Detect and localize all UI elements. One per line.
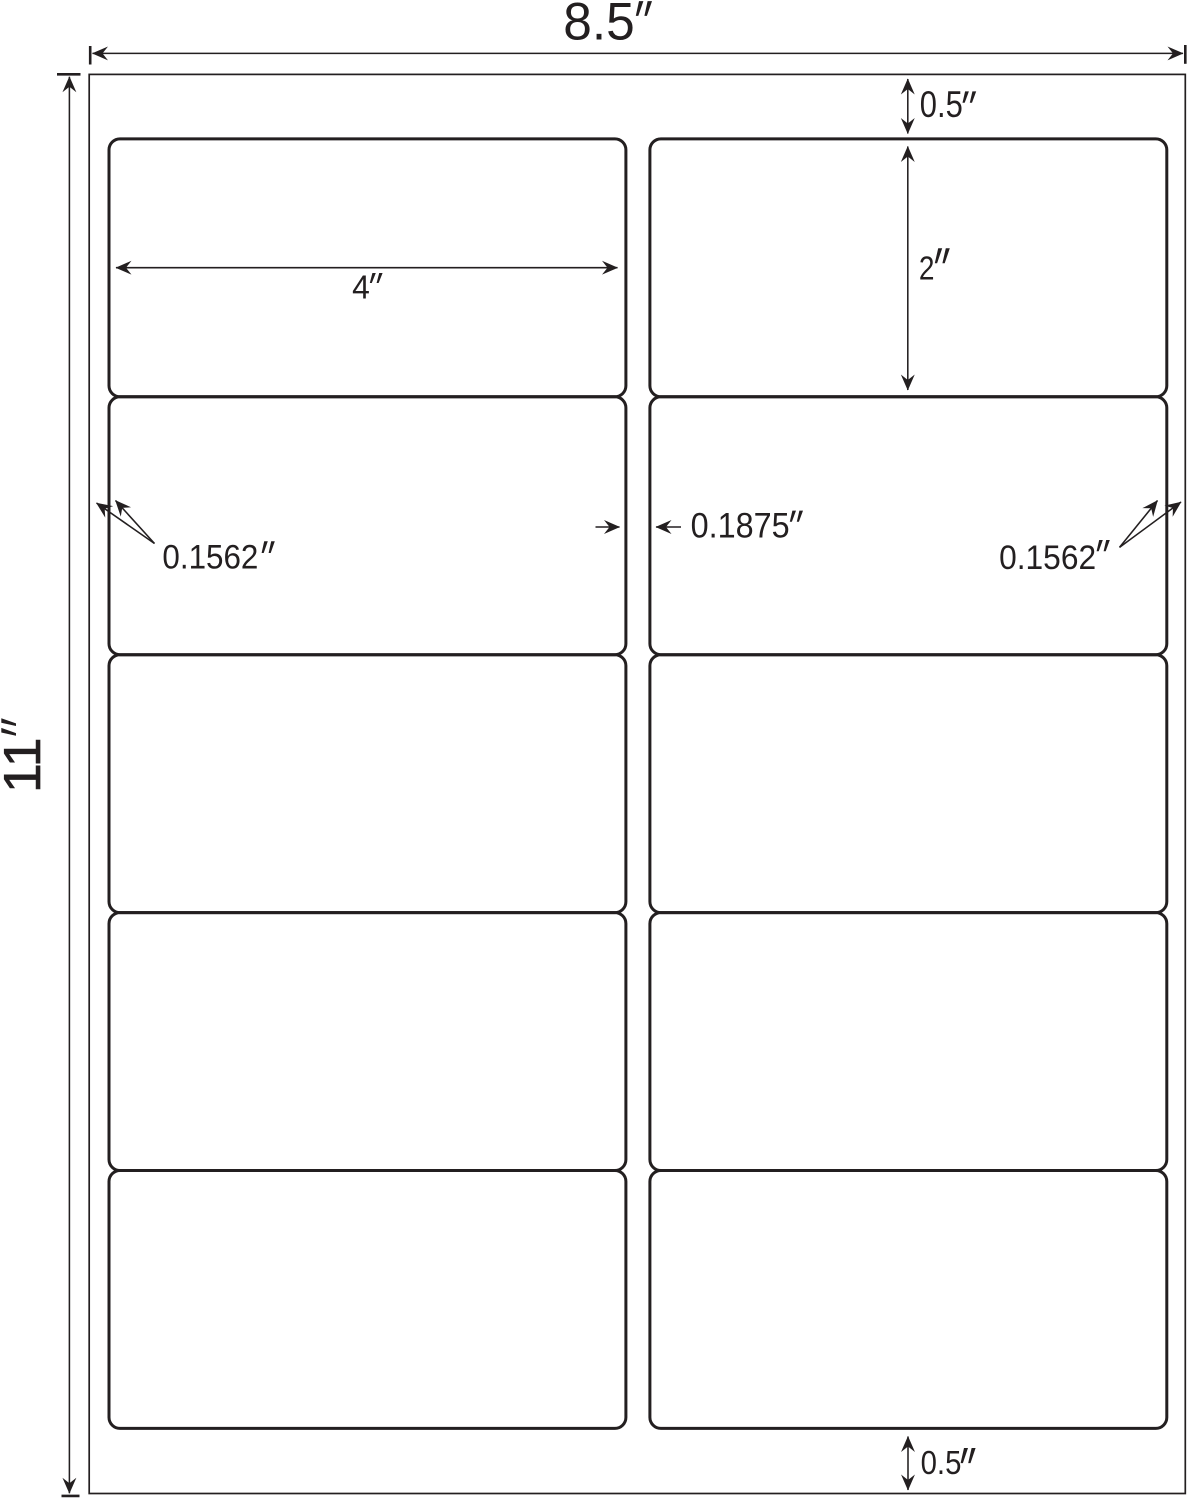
svg-text:2: 2 (919, 249, 935, 286)
svg-text:11: 11 (0, 738, 52, 794)
svg-text:4: 4 (352, 270, 370, 307)
svg-text:0.5: 0.5 (921, 1445, 962, 1482)
svg-text:8.5: 8.5 (563, 0, 635, 52)
svg-text:0.5: 0.5 (920, 84, 963, 125)
svg-text:0.1562: 0.1562 (162, 539, 258, 577)
svg-text:0.1875: 0.1875 (691, 507, 790, 546)
svg-text:0.1562: 0.1562 (999, 539, 1096, 577)
